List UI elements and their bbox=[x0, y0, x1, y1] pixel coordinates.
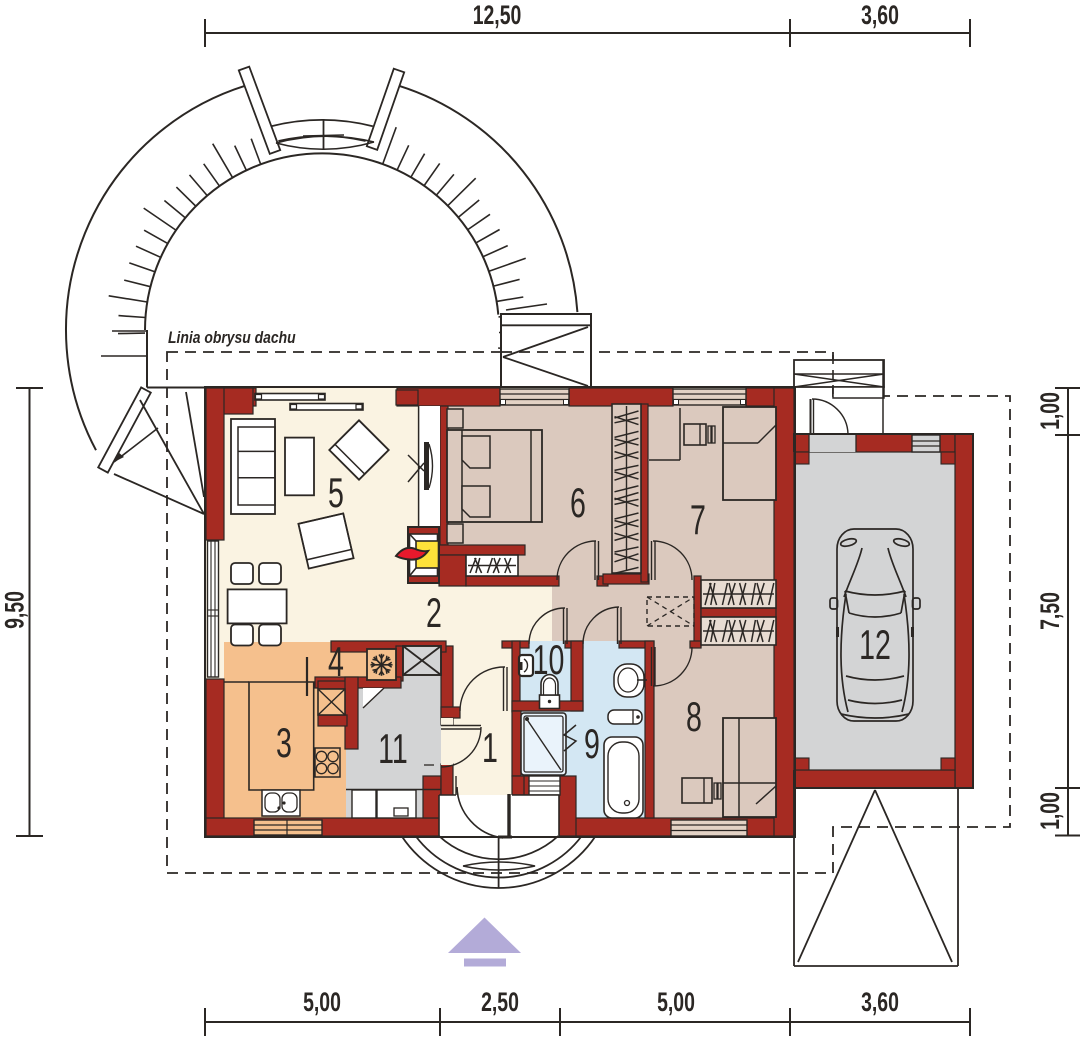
svg-text:12: 12 bbox=[859, 620, 891, 668]
svg-text:3: 3 bbox=[276, 718, 292, 766]
svg-text:6: 6 bbox=[570, 478, 586, 526]
svg-text:1: 1 bbox=[482, 723, 498, 771]
svg-text:7,50: 7,50 bbox=[1035, 592, 1065, 630]
svg-text:12,50: 12,50 bbox=[473, 0, 522, 30]
svg-text:2,50: 2,50 bbox=[481, 987, 519, 1017]
svg-text:8: 8 bbox=[686, 692, 702, 740]
svg-text:7: 7 bbox=[690, 495, 706, 543]
svg-text:3,60: 3,60 bbox=[861, 0, 899, 30]
svg-text:5,00: 5,00 bbox=[657, 987, 695, 1017]
svg-text:11: 11 bbox=[378, 724, 408, 772]
svg-text:5: 5 bbox=[328, 468, 344, 516]
svg-text:4: 4 bbox=[328, 637, 344, 685]
svg-text:10: 10 bbox=[533, 635, 565, 683]
svg-text:1,00: 1,00 bbox=[1035, 792, 1065, 830]
svg-text:9,50: 9,50 bbox=[0, 591, 29, 629]
svg-text:9: 9 bbox=[584, 719, 600, 767]
svg-text:2: 2 bbox=[426, 588, 442, 636]
svg-text:1,00: 1,00 bbox=[1035, 392, 1065, 430]
svg-text:3,60: 3,60 bbox=[861, 987, 899, 1017]
svg-text:5,00: 5,00 bbox=[303, 987, 341, 1017]
svg-text:Linia obrysu dachu: Linia obrysu dachu bbox=[168, 329, 296, 348]
